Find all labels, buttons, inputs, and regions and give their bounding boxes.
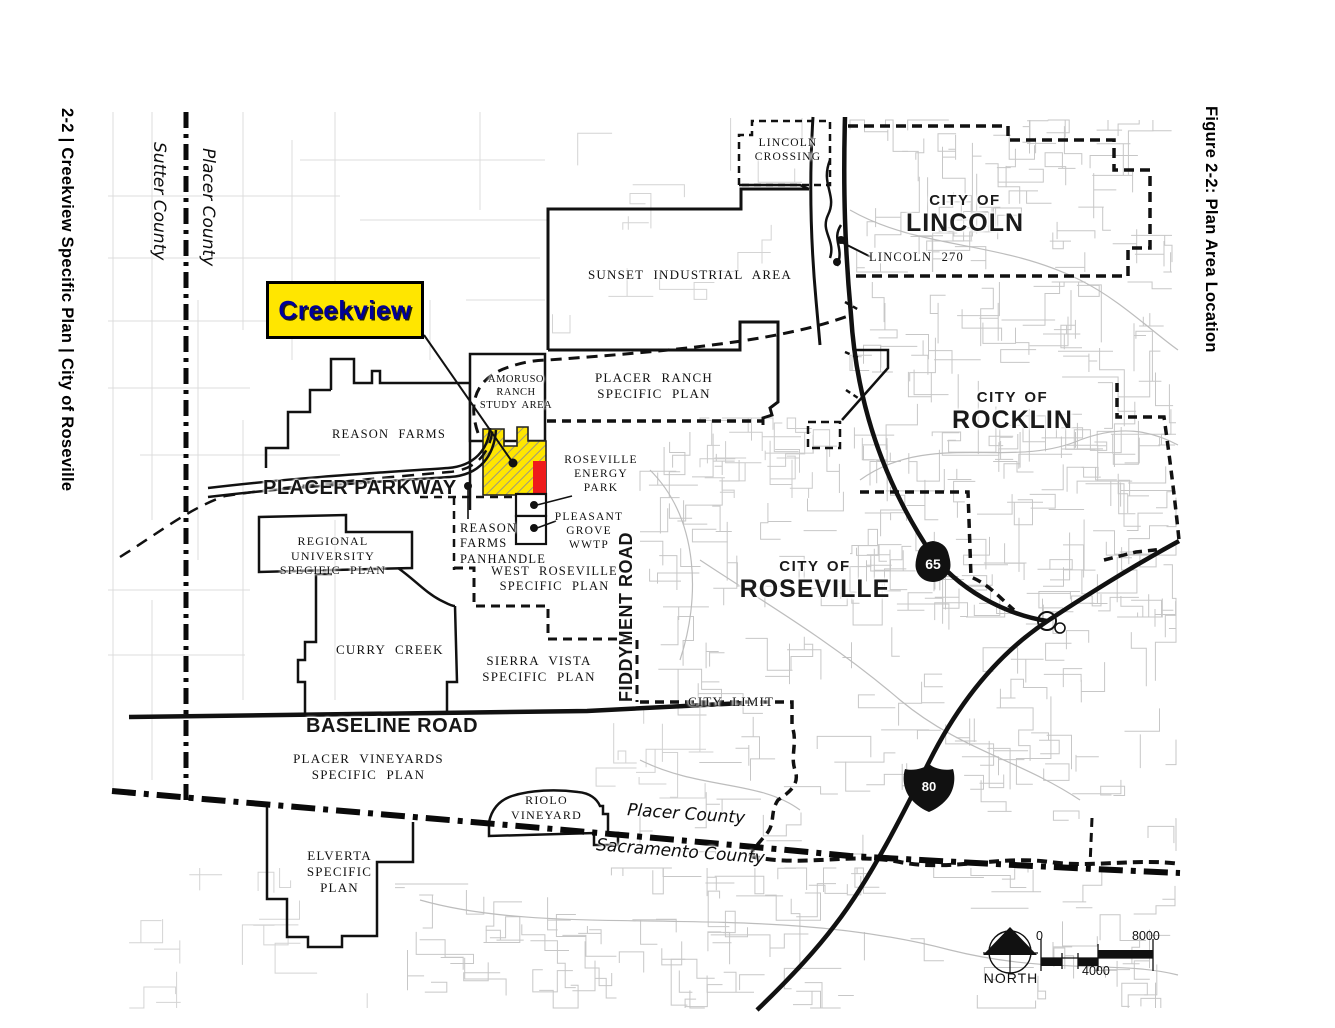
page-side-caption: 2-2 | Creekview Specific Plan | City of … <box>57 108 76 498</box>
scale-tick-8000: 8000 <box>1132 929 1160 943</box>
placer-ranch-line2: SPECIFIC PLAN <box>584 386 724 402</box>
lincoln-crossing-label: LINCOLN CROSSING <box>742 136 834 164</box>
roseville-energy-park-area <box>533 461 546 494</box>
riolo-line1: RIOLO <box>504 793 589 808</box>
placer-vineyards-line2: SPECIFIC PLAN <box>291 767 446 783</box>
placer-vineyards-line1: PLACER VINEYARDS <box>291 751 446 767</box>
sutter-county-label: Sutter County <box>149 142 169 267</box>
riolo-vineyard-label: RIOLO VINEYARD <box>504 793 589 822</box>
lincoln-crossing-line2: CROSSING <box>742 150 834 164</box>
placer-ranch-line1: PLACER RANCH <box>584 370 724 386</box>
panhandle-line1: REASON <box>460 521 565 536</box>
city-of-roseville-line1: CITY OF <box>735 559 895 576</box>
city-limit-label: CITY LIMIT <box>688 694 774 710</box>
amoruso-line1: AMORUSO <box>479 374 553 387</box>
lincoln-crossing-line1: LINCOLN <box>742 136 834 150</box>
city-of-roseville-label: CITY OF ROSEVILLE <box>735 559 895 603</box>
sierra-vista-line2: SPECIFIC PLAN <box>480 669 598 685</box>
elverta-label: ELVERTA SPECIFIC PLAN <box>297 848 382 896</box>
curry-creek-boundary <box>298 574 332 713</box>
elverta-line1: ELVERTA <box>297 848 382 864</box>
roseville-energy-line3: PARK <box>558 481 644 495</box>
regional-university-line1: REGIONAL UNIVERSITY <box>257 534 409 563</box>
city-of-lincoln-label: CITY OF LINCOLN <box>895 193 1035 237</box>
city-of-rocklin-line2: ROCKLIN <box>940 407 1085 435</box>
roseville-energy-label: ROSEVILLE ENERGY PARK <box>558 453 644 495</box>
city-of-lincoln-line2: LINCOLN <box>895 210 1035 238</box>
sierra-vista-label: SIERRA VISTA SPECIFIC PLAN <box>480 653 598 685</box>
creekview-callout: Creekview <box>266 281 424 339</box>
roseville-energy-line1: ROSEVILLE <box>558 453 644 467</box>
north-arrow <box>983 927 1038 974</box>
baseline-road-label: BASELINE ROAD <box>306 715 478 738</box>
interstate-80-number: 80 <box>922 779 936 794</box>
elverta-line2: SPECIFIC <box>297 864 382 880</box>
panhandle-line2: FARMS <box>460 536 565 551</box>
north-label: NORTH <box>983 970 1039 986</box>
west-roseville-label: WEST ROSEVILLE SPECIFIC PLAN <box>487 564 622 595</box>
city-of-roseville-line2: ROSEVILLE <box>735 576 895 604</box>
reason-farms-label: REASON FARMS <box>332 427 446 442</box>
sunset-industrial-label: SUNSET INDUSTRIAL AREA <box>588 267 792 283</box>
west-roseville-line2: SPECIFIC PLAN <box>487 579 622 594</box>
figure-page: 65 80 2-2 | Creekview Specific Plan | Ci… <box>0 0 1335 1028</box>
west-roseville-line1: WEST ROSEVILLE <box>487 564 622 579</box>
regional-university-label: REGIONAL UNIVERSITY SPECIFIC PLAN <box>257 534 409 578</box>
sierra-vista-line1: SIERRA VISTA <box>480 653 598 669</box>
amoruso-label: AMORUSO RANCH STUDY AREA <box>479 374 553 412</box>
scale-tick-0: 0 <box>1036 929 1043 943</box>
city-of-rocklin-line1: CITY OF <box>940 390 1085 407</box>
creekview-callout-text: Creekview <box>278 295 411 326</box>
route-65-number: 65 <box>925 556 941 572</box>
placer-county-label-vertical: Placer County <box>198 148 218 288</box>
lincoln-270-label: LINCOLN 270 <box>869 250 964 265</box>
amoruso-line2: RANCH <box>479 387 553 400</box>
placer-parkway-label: PLACER PARKWAY <box>263 477 457 500</box>
riolo-line2: VINEYARD <box>504 808 589 823</box>
amoruso-line3: STUDY AREA <box>479 400 553 413</box>
placer-ranch-label: PLACER RANCH SPECIFIC PLAN <box>584 370 724 402</box>
reason-farms-panhandle-label: REASON FARMS PANHANDLE <box>460 521 565 567</box>
elverta-line3: PLAN <box>297 880 382 896</box>
city-limit-line <box>640 702 796 856</box>
placer-vineyards-label: PLACER VINEYARDS SPECIFIC PLAN <box>291 751 446 783</box>
city-of-rocklin-label: CITY OF ROCKLIN <box>940 390 1085 434</box>
scale-tick-4000: 4000 <box>1082 964 1110 978</box>
figure-title: Figure 2-2: Plan Area Location <box>1201 106 1220 426</box>
city-of-lincoln-line1: CITY OF <box>895 193 1035 210</box>
curry-creek-label: CURRY CREEK <box>336 642 444 658</box>
highway-shields: 65 80 <box>904 541 955 812</box>
regional-university-line2: SPECIFIC PLAN <box>257 563 409 578</box>
roseville-energy-line2: ENERGY <box>558 467 644 481</box>
